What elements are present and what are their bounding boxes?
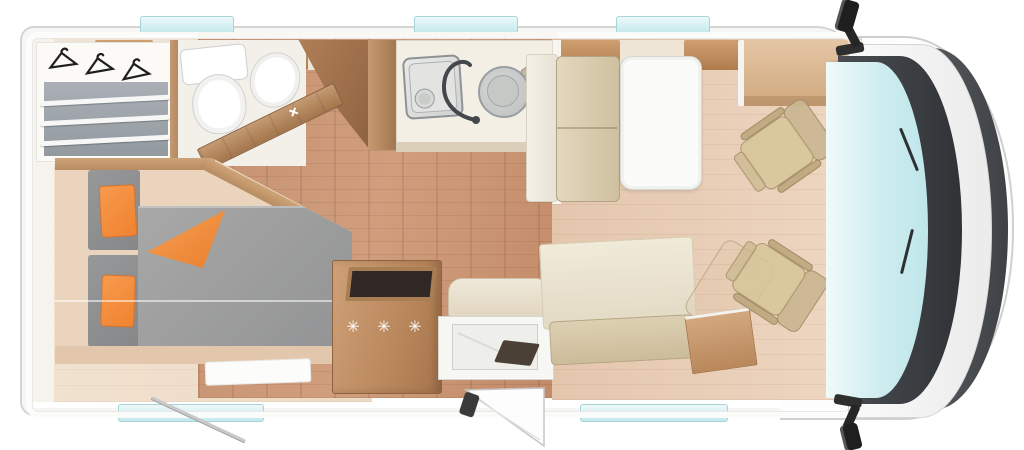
cab-side-cabinet	[684, 308, 757, 375]
side-mirror-head	[834, 0, 860, 34]
hob-pot-inner	[487, 75, 519, 107]
floor-mat	[205, 358, 312, 386]
window-bottom-2	[580, 404, 728, 422]
bed-blanket-orange	[140, 203, 235, 278]
snowflake-symbols: ✳ ✳ ✳	[333, 317, 441, 343]
bed-head-trim	[55, 158, 215, 170]
dinette-table	[620, 56, 702, 190]
refrigerator: ✳ ✳ ✳	[332, 260, 442, 394]
side-bench-cushion	[549, 314, 695, 365]
side-mirror-head	[839, 422, 863, 450]
kitchen-side-panel	[368, 40, 398, 150]
motorhome-floorplan: ✳ ✳ ✳	[0, 0, 1024, 450]
bed-seam	[55, 300, 352, 302]
window-top-3	[616, 16, 710, 34]
dinette-bench-backrest	[526, 54, 558, 202]
dinette-bench-seam	[557, 127, 617, 129]
clothes-hanger-icon	[42, 44, 166, 84]
side-bench	[539, 236, 699, 370]
door-swing-icon	[452, 384, 552, 450]
refrigerator-top-vent	[345, 267, 437, 301]
dinette-bench-seat	[556, 56, 620, 202]
window-bottom-1	[118, 404, 264, 422]
bed-pillow-orange	[99, 184, 138, 238]
